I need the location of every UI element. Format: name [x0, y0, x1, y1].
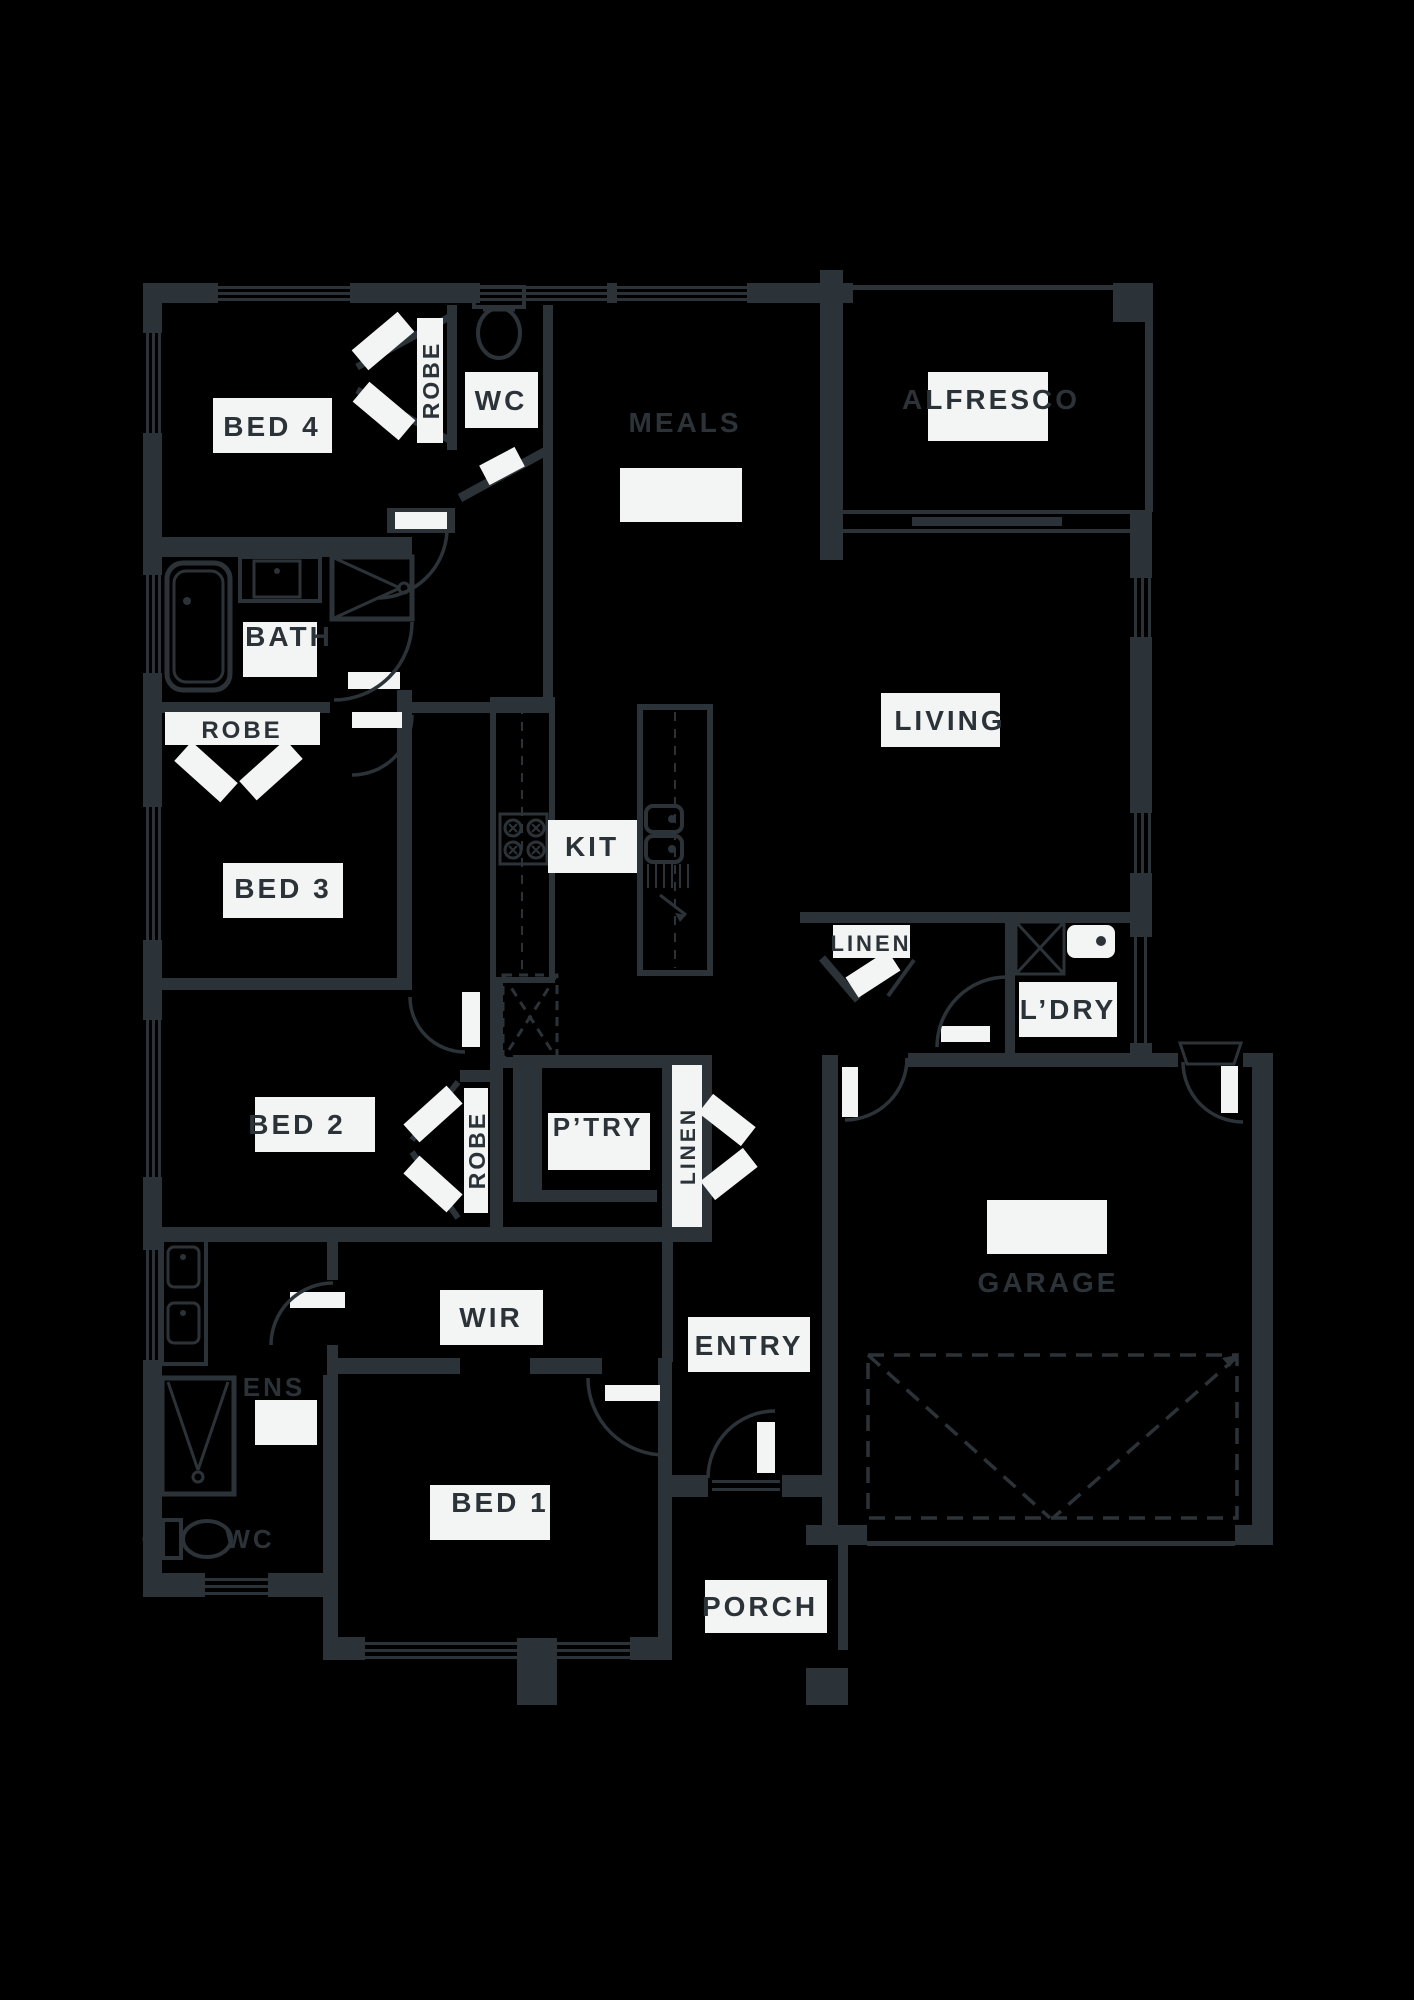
ensuite-door	[271, 1283, 345, 1345]
label-bed4: BED 4	[213, 398, 332, 453]
room-label-bed3: BED 3	[234, 873, 331, 904]
room-label-bed4: BED 4	[223, 411, 320, 442]
label-ensuite: ENS	[243, 1372, 317, 1445]
garage-door-sill	[867, 1541, 1235, 1546]
kitchen-bench	[493, 700, 552, 980]
label-linen-cupboard: LINEN	[672, 1065, 702, 1227]
front-door	[708, 1411, 775, 1478]
room-label-living: LIVING	[894, 705, 1005, 736]
alfresco-slider-panel	[912, 517, 1062, 526]
label-entry: ENTRY	[688, 1317, 810, 1372]
label-garage: GARAGE	[978, 1200, 1119, 1298]
kitchen-island	[640, 707, 710, 973]
room-label-robe-bed2: ROBE	[464, 1111, 490, 1189]
window-ens-bottom	[205, 1578, 268, 1595]
window-bed4-left	[146, 333, 161, 433]
porch-pier	[517, 1638, 557, 1705]
garage-rear-step	[1180, 1043, 1241, 1064]
room-label-wc-main: WC	[475, 385, 528, 416]
hall-door	[937, 977, 1007, 1047]
ens-shower	[162, 1378, 234, 1494]
label-wir: WIR	[440, 1290, 543, 1345]
dishwasher-hatch	[648, 864, 688, 888]
room-label-porch: PORCH	[702, 1591, 818, 1622]
floor-plan-canvas: BED 4 ROBE WC MEALS ALFRESCO BATH ROBE B…	[0, 0, 1414, 2000]
robe-bed2-leaf	[403, 1156, 462, 1213]
bath-vanity	[240, 557, 320, 601]
label-wc-ensuite: WC	[225, 1524, 274, 1554]
window-ens-left	[146, 1250, 161, 1360]
room-label-robe-bed4: ROBE	[418, 341, 444, 419]
robe-bed4-leaf	[353, 382, 416, 440]
label-bed2: BED 2	[248, 1097, 375, 1152]
room-label-pantry: P’TRY	[553, 1112, 644, 1142]
label-bed1: BED 1	[430, 1485, 550, 1540]
label-robe-bed2: ROBE	[464, 1088, 490, 1213]
label-wc-main: WC	[465, 372, 538, 428]
room-label-linen-hall: LINEN	[831, 931, 912, 956]
toilet-main	[474, 287, 524, 358]
room-label-laundry: L’DRY	[1020, 994, 1116, 1025]
label-pantry: P’TRY	[548, 1112, 650, 1170]
label-kitchen: KIT	[548, 820, 637, 873]
label-bath: BATH	[243, 621, 333, 677]
label-alfresco: ALFRESCO	[902, 372, 1080, 441]
bath-shower	[332, 557, 412, 619]
bath-door	[334, 622, 412, 700]
room-label-linen-cupboard: LINEN	[677, 1107, 700, 1185]
window-bed1-bottom	[365, 1642, 630, 1659]
laundry-external-door	[1134, 937, 1147, 1043]
label-bed3: BED 3	[223, 863, 343, 918]
washing-machine-space	[1016, 922, 1064, 974]
window-living-right-1	[1134, 578, 1151, 637]
room-label-bath: BATH	[245, 621, 333, 652]
room-label-wc-ensuite: WC	[225, 1524, 274, 1554]
meals-table	[620, 468, 742, 522]
bed2-door	[410, 992, 480, 1052]
label-meals: MEALS	[629, 407, 742, 438]
garage-rear-door	[1183, 1062, 1243, 1122]
room-label-garage: GARAGE	[978, 1267, 1119, 1298]
ens-vanity	[162, 1238, 206, 1364]
front-door-threshold	[712, 1480, 780, 1491]
robe-bed2-leaf	[403, 1086, 462, 1143]
robe-bed3-leaf	[239, 740, 302, 801]
room-label-ensuite: ENS	[243, 1372, 305, 1402]
robe-bed3-leaf	[174, 742, 237, 803]
room-label-bed1: BED 1	[451, 1487, 548, 1518]
garage-door-zone	[868, 1355, 1237, 1518]
window-meals-top	[617, 286, 747, 301]
window-bath-left	[146, 575, 161, 673]
window-bed3-left	[146, 807, 161, 940]
label-robe-bed3: ROBE	[165, 712, 320, 745]
room-label-alfresco: ALFRESCO	[902, 384, 1080, 415]
window-bed2-left	[146, 1020, 161, 1177]
window-living-right-2	[1134, 813, 1151, 873]
bathtub	[167, 563, 230, 690]
label-laundry: L’DRY	[1019, 982, 1117, 1037]
label-robe-bed4: ROBE	[417, 318, 444, 443]
room-label-kitchen: KIT	[565, 831, 619, 862]
label-linen-hall: LINEN	[831, 925, 912, 958]
room-label-bed2: BED 2	[248, 1109, 345, 1140]
label-living: LIVING	[881, 693, 1006, 747]
window-bed4-top	[218, 286, 350, 301]
porch-corner-block	[806, 1668, 848, 1705]
room-label-meals: MEALS	[629, 407, 742, 438]
porch-right-wall	[838, 1545, 848, 1650]
room-label-robe-bed3: ROBE	[201, 717, 282, 744]
fridge-space	[503, 975, 557, 1059]
laundry-trough	[1067, 925, 1115, 958]
floor-plan: BED 4 ROBE WC MEALS ALFRESCO BATH ROBE B…	[0, 0, 1414, 2000]
room-label-entry: ENTRY	[695, 1330, 804, 1361]
bed1-door	[588, 1378, 665, 1455]
room-label-wir: WIR	[459, 1302, 522, 1333]
entry-garage-door	[842, 1058, 907, 1120]
label-porch: PORCH	[702, 1580, 827, 1633]
